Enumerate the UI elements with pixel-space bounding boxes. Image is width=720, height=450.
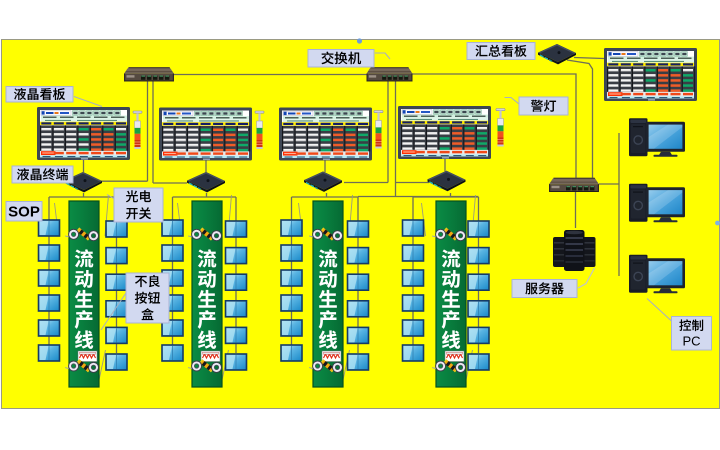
- svg-text:PC: PC: [682, 334, 700, 349]
- svg-text:SOP: SOP: [8, 204, 40, 221]
